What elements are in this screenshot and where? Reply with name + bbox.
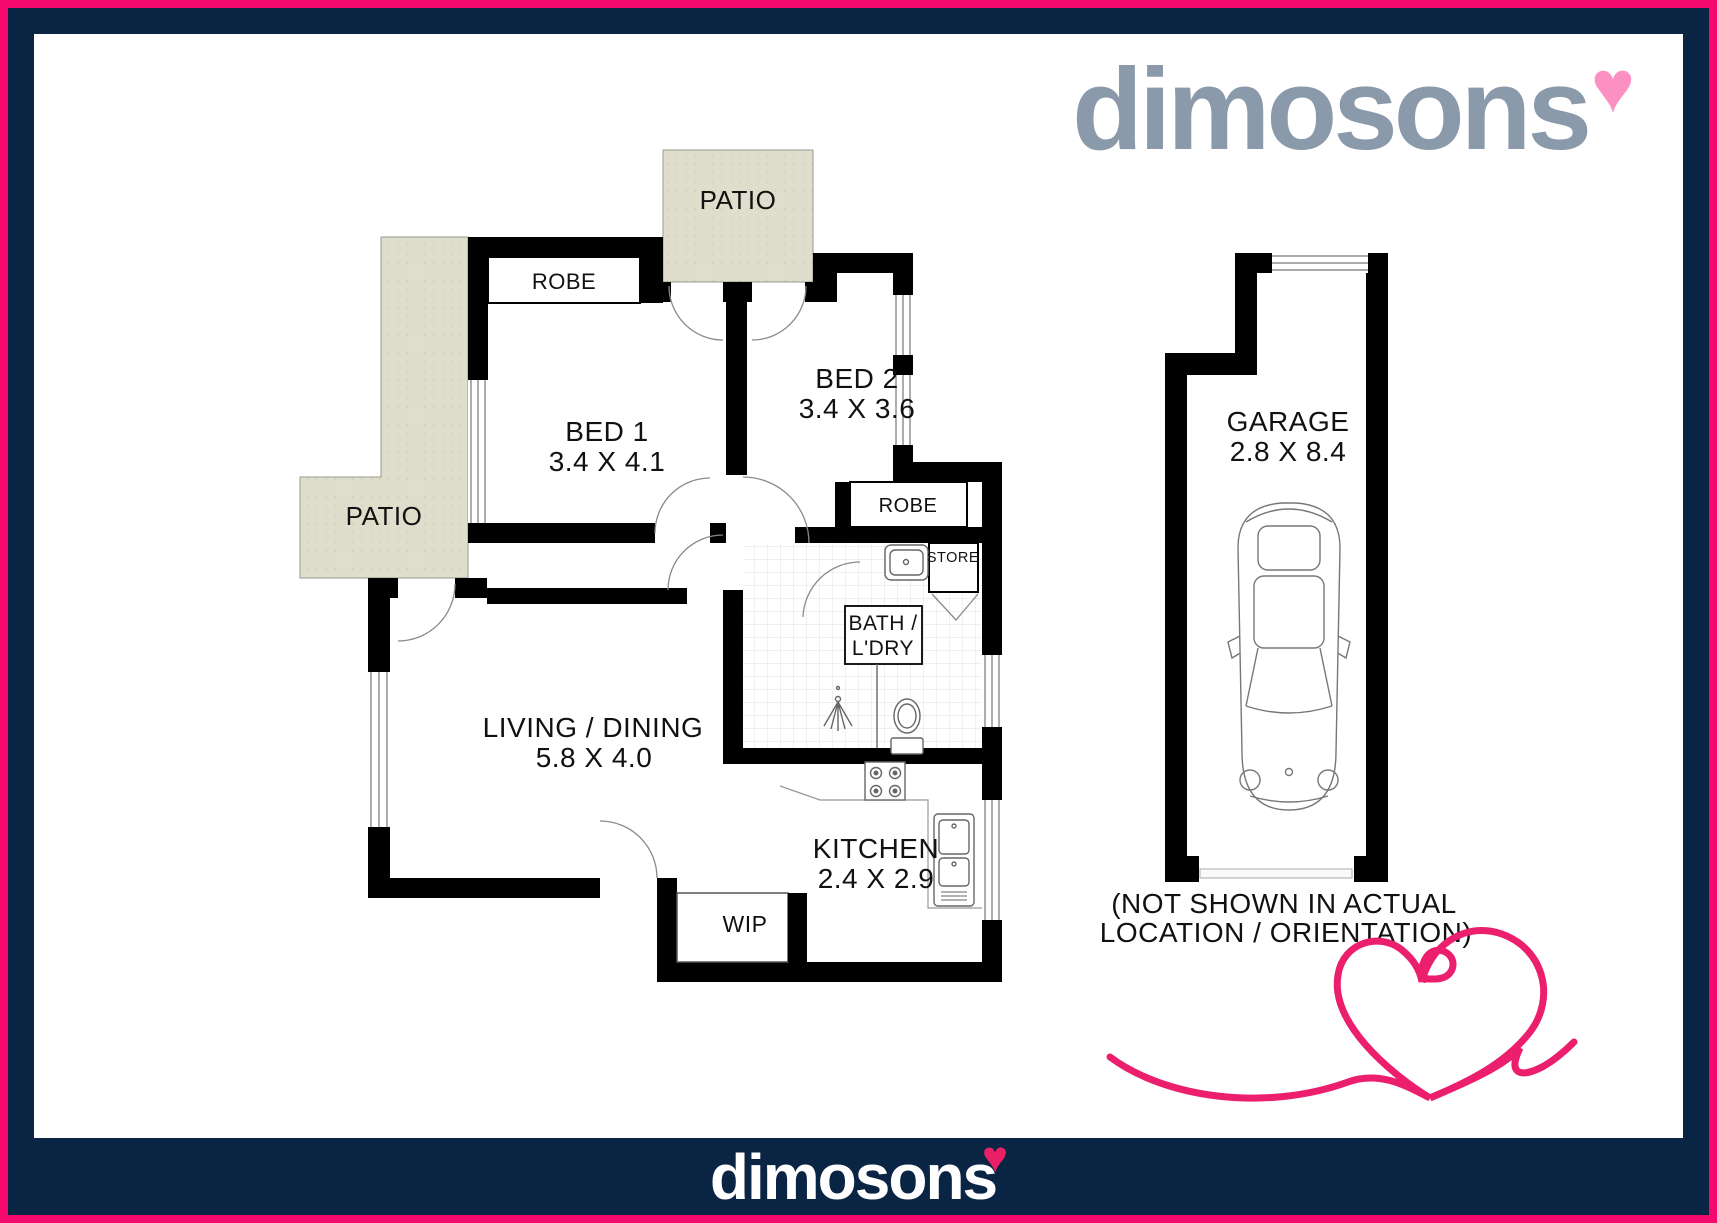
footer-logo-heart-icon: ♥ [982,1133,1008,1182]
brand-logo-text: dimosons [1072,44,1588,174]
bed1-room-label: BED 1 [565,416,648,447]
footer-logo: dimosons ♥ [710,1133,1008,1213]
living-west-window [368,672,390,827]
cooktop [865,762,905,800]
bath-label-line2: L'DRY [852,637,914,660]
bed1-room-dims: 3.4 X 4.1 [549,446,666,477]
kitchen-east-window [982,800,1002,920]
wip-label: WIP [723,911,768,937]
garage-top-window [1272,253,1368,273]
living-room-dims: 5.8 X 4.0 [536,742,653,773]
robe2-label: ROBE [879,495,938,517]
floorplan-page: dimosons ♥ [0,0,1717,1223]
bed1-west-window [468,380,488,523]
store-label: STORE [927,550,979,566]
kitchen-room-dims: 2.4 X 2.9 [818,863,935,894]
patio-left-label: PATIO [346,501,423,531]
bath-label-line1: BATH / [848,612,917,635]
brand-logo-heart-icon: ♥ [1591,45,1635,128]
brand-logo: dimosons ♥ [1072,44,1635,174]
living-room-label: LIVING / DINING [483,712,704,743]
wip-kitchen-wall [788,893,807,962]
footer-logo-text: dimosons [710,1141,996,1213]
patio-top-area [663,150,813,282]
kitchen-room-label: KITCHEN [813,833,939,864]
bed2-east-window-upper [893,295,913,355]
garage-room-label: GARAGE [1227,406,1350,437]
car-illustration [1228,503,1350,810]
bath-east-window [982,655,1002,727]
garage-room-dims: 2.8 X 8.4 [1230,436,1347,467]
robe1-label: ROBE [532,269,596,294]
floorplan-canvas: dimosons ♥ [0,0,1717,1223]
patio-top-label: PATIO [700,185,777,215]
bed2-room-label: BED 2 [815,363,898,394]
garage-note-line2: LOCATION / ORIENTATION) [1100,917,1472,948]
bed2-room-dims: 3.4 X 3.6 [799,393,916,424]
garage-door [1200,869,1352,878]
garage-note-line1: (NOT SHOWN IN ACTUAL [1111,888,1457,919]
kitchen-sink [934,814,974,906]
